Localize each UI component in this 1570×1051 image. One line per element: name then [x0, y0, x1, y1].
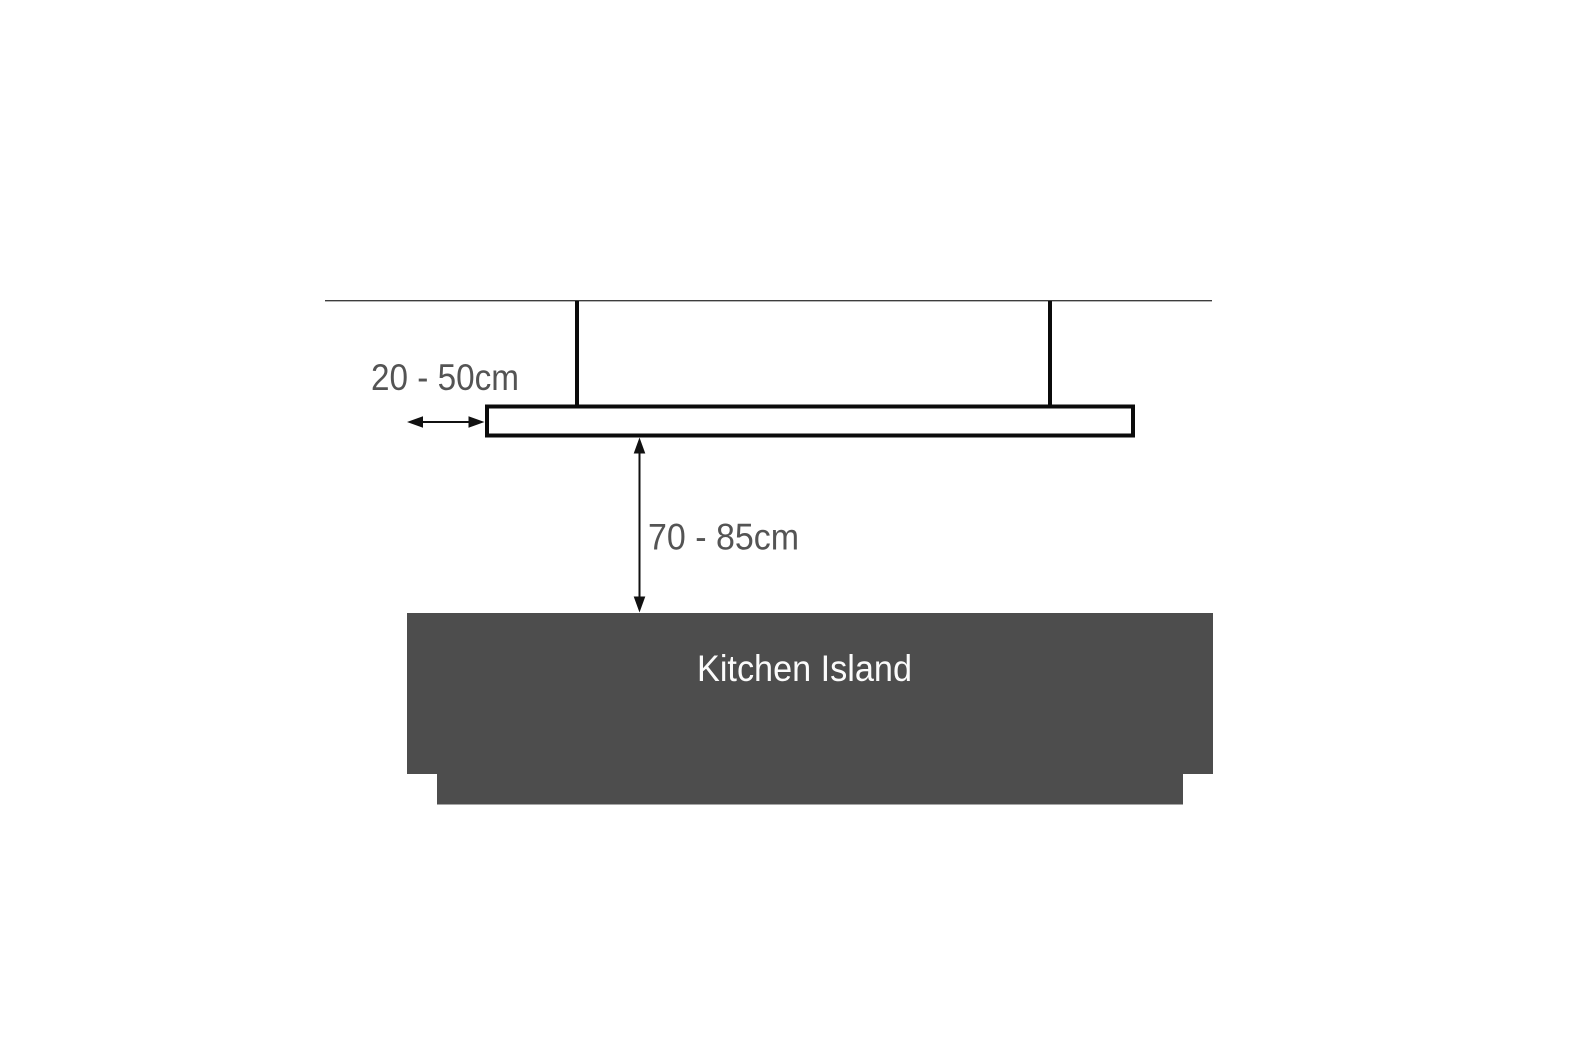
svg-text:20 - 50cm: 20 - 50cm: [371, 357, 519, 398]
svg-text:70 - 85cm: 70 - 85cm: [648, 517, 799, 558]
svg-text:Kitchen Island: Kitchen Island: [697, 647, 912, 689]
